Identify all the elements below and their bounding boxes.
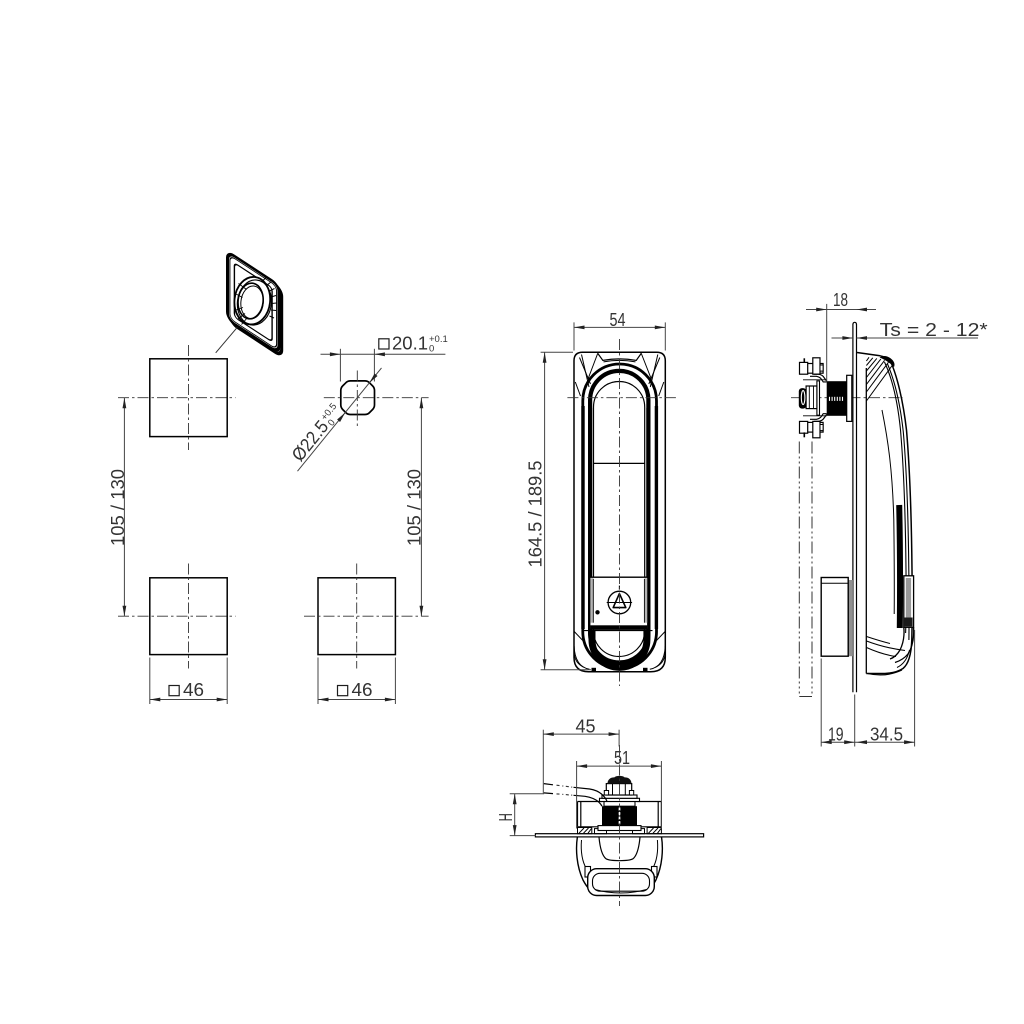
- svg-text:0: 0: [429, 344, 434, 355]
- svg-text:51: 51: [614, 747, 630, 768]
- svg-text:18: 18: [833, 289, 848, 310]
- svg-text:45: 45: [576, 715, 596, 736]
- svg-text:34.5: 34.5: [870, 724, 903, 745]
- svg-text:46: 46: [183, 679, 204, 700]
- svg-text:20.1: 20.1: [392, 333, 428, 354]
- svg-text:164.5 / 189.5: 164.5 / 189.5: [525, 461, 546, 568]
- svg-text:19: 19: [828, 724, 844, 745]
- svg-text:46: 46: [352, 679, 373, 700]
- svg-text:H: H: [495, 813, 516, 821]
- svg-text:105 / 130: 105 / 130: [404, 469, 425, 546]
- svg-text:Ts = 2 - 12*: Ts = 2 - 12*: [880, 319, 988, 340]
- svg-text:105 / 130: 105 / 130: [107, 469, 128, 546]
- svg-text:54: 54: [610, 309, 626, 330]
